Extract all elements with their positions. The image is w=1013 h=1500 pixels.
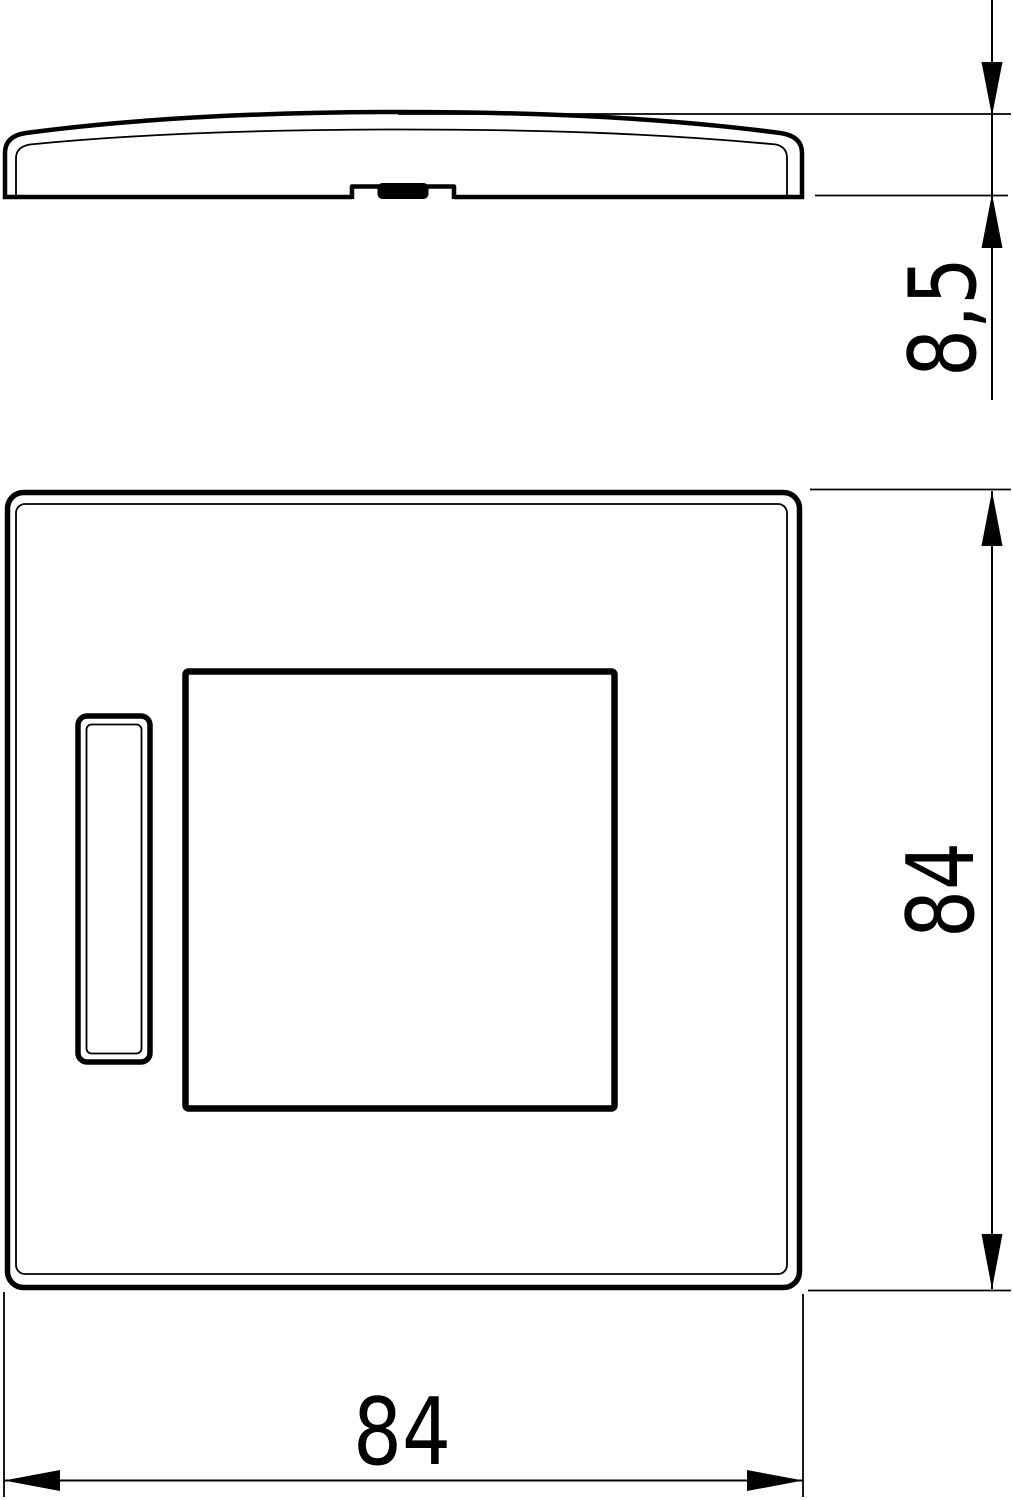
arrowhead-down-icon [982,62,1003,116]
drawing-canvas: 8,5 84 84 [0,0,1013,1500]
front-view [8,493,800,1288]
arrowhead-right-icon [747,1470,803,1491]
arrowhead-up-icon [982,491,1003,546]
label-field-outline [78,716,150,1062]
label-field-inner-edge [87,725,142,1054]
height-value: 84 [887,842,995,938]
profile-latch-tab [378,183,429,199]
plate-inner-edge [16,504,787,1274]
arrowhead-up-icon [982,194,1003,248]
width-value: 84 [353,1378,451,1486]
side-profile-view [3,112,804,199]
plate-outer-outline [8,493,800,1288]
thickness-value: 8,5 [889,257,997,377]
technical-drawing: 8,5 84 84 [0,0,1013,1500]
arrowhead-down-icon [982,1234,1003,1289]
thickness-dimension: 8,5 [398,0,1011,400]
arrowhead-left-icon [4,1470,60,1491]
height-dimension: 84 [808,490,1011,1291]
width-dimension: 84 [4,1292,803,1497]
central-square-opening [186,672,615,1109]
